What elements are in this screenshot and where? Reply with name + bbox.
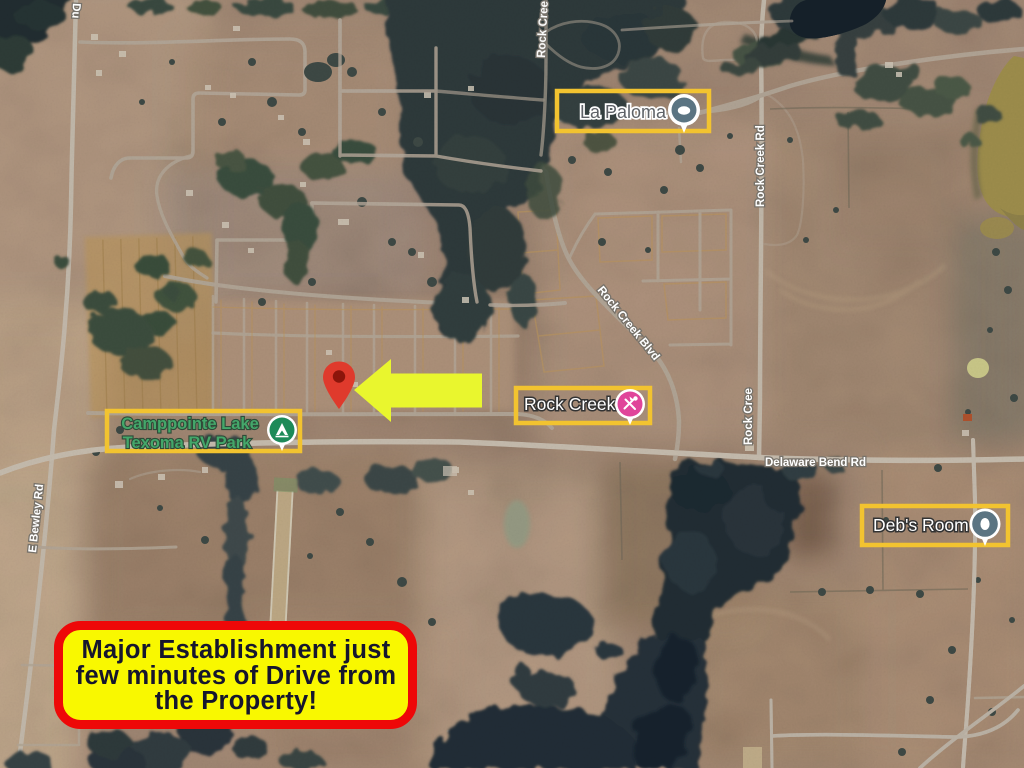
svg-text:La Paloma: La Paloma [580,102,667,122]
svg-text:Rock Creek: Rock Creek [524,394,616,414]
svg-text:Rock Cree: Rock Cree [743,388,755,445]
svg-text:few minutes of Drive from: few minutes of Drive from [76,662,397,690]
svg-text:Rock Creek Rd: Rock Creek Rd [755,125,767,207]
svg-text:Delaware Bend Rd: Delaware Bend Rd [765,457,866,469]
svg-text:Du: Du [69,3,82,19]
svg-text:Texoma RV Park: Texoma RV Park [123,434,253,452]
svg-text:Camppointe Lake: Camppointe Lake [121,415,259,433]
svg-text:Major Establishment just: Major Establishment just [81,636,390,664]
svg-text:the Property!: the Property! [155,687,318,715]
svg-text:Deb's Room: Deb's Room [873,515,969,535]
